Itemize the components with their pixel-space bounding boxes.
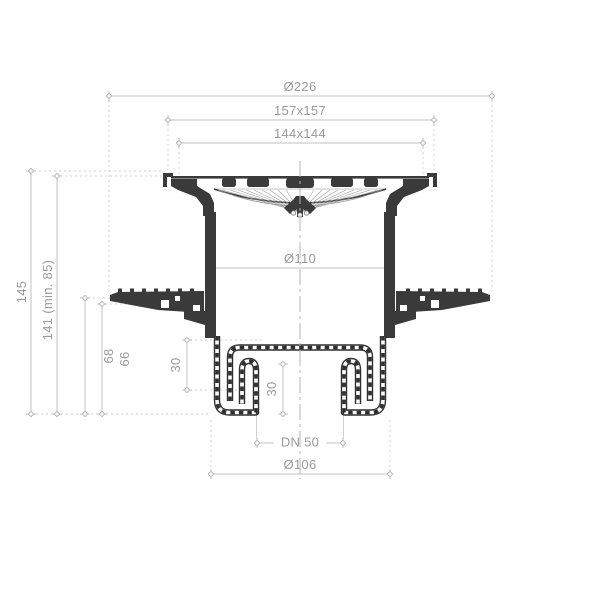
dimension-end-marker [489, 91, 494, 101]
dimension-label-145: 145 [14, 281, 29, 304]
dimension-end-marker [97, 411, 107, 416]
dimension-end-marker [278, 411, 288, 416]
dimension-end-marker [52, 173, 62, 178]
dimension-end-marker [182, 337, 192, 342]
dimension-end-marker [97, 301, 107, 306]
dimension-end-marker [340, 438, 345, 448]
dimension-label-66: 66 [117, 351, 132, 366]
dimension-end-marker [387, 469, 392, 479]
dimension-end-marker [431, 115, 436, 125]
dimension-annotations: Ø226157x157144x144Ø110DN 50Ø106145141 (m… [14, 79, 495, 479]
dimension-label-144x144: 144x144 [274, 126, 326, 141]
dimension-end-marker [254, 438, 259, 448]
dimension-end-marker [165, 115, 170, 125]
technical-drawing-canvas: Ø226157x157144x144Ø110DN 50Ø106145141 (m… [0, 0, 600, 600]
dimension-end-marker [26, 411, 36, 416]
dimension-end-marker [182, 387, 192, 392]
dimension-label-30: 30 [264, 381, 279, 396]
dimension-end-marker [26, 168, 36, 173]
dimension-end-marker [80, 295, 90, 300]
dimension-end-marker [420, 138, 425, 148]
dimension-label-68: 68 [101, 348, 116, 363]
dimension-label-157x157: 157x157 [274, 103, 326, 118]
dimension-end-marker [278, 361, 288, 366]
dimension-end-marker [106, 91, 111, 101]
dimension-end-marker [176, 138, 181, 148]
dimension-end-marker [52, 411, 62, 416]
drawing-page: Ø226157x157144x144Ø110DN 50Ø106145141 (m… [0, 0, 600, 600]
dimension-end-marker [208, 469, 213, 479]
dimension-label--226: Ø226 [283, 79, 316, 94]
dimension-end-marker [80, 411, 90, 416]
dimension-label-30: 30 [168, 357, 183, 372]
dimension-label-141-min-85-: 141 (min. 85) [40, 260, 55, 341]
